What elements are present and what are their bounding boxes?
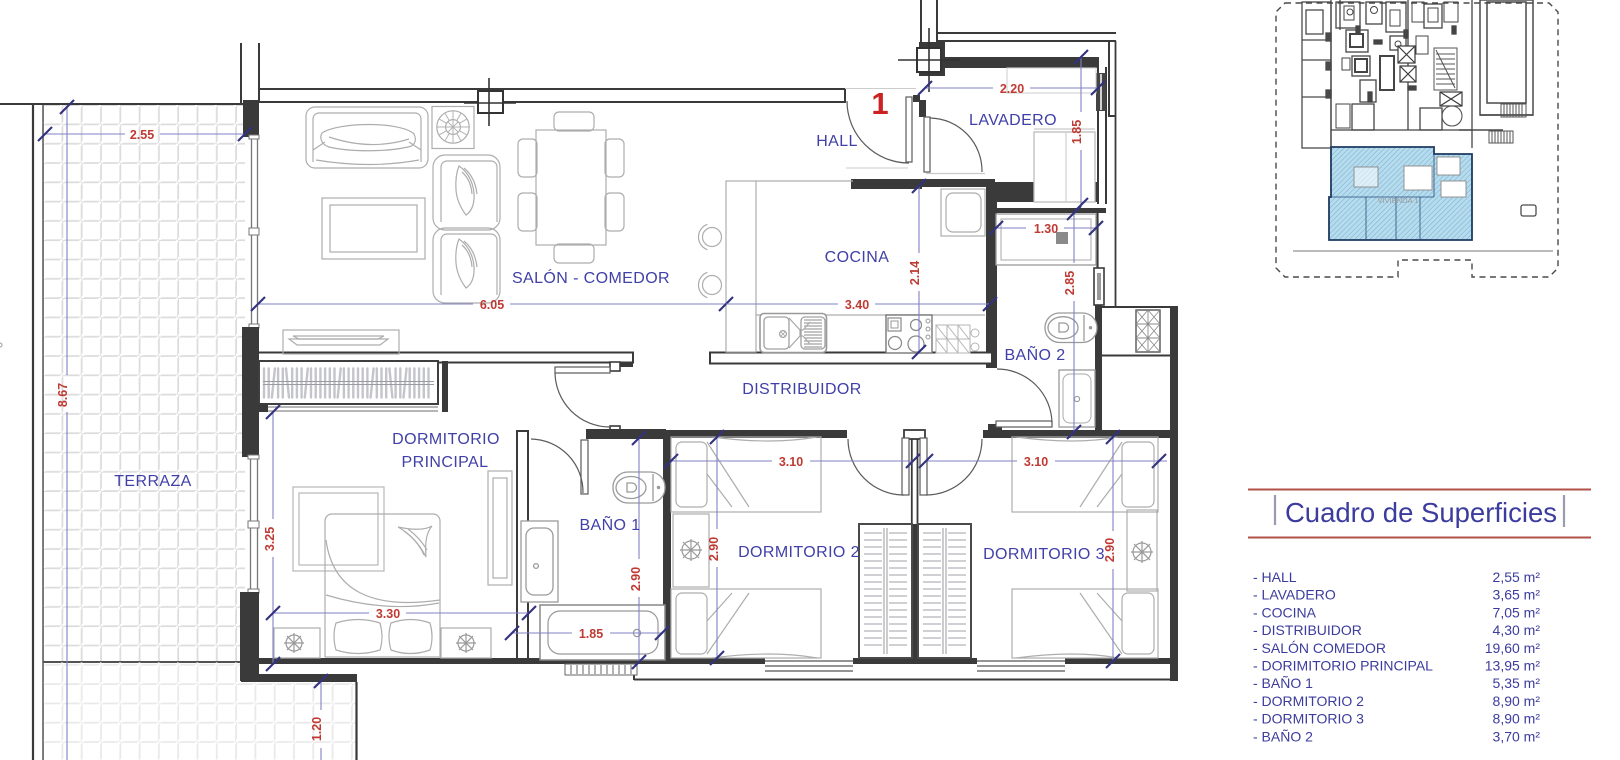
svg-text:3.40: 3.40 bbox=[845, 298, 869, 312]
svg-text:- DORMITORIO 2: - DORMITORIO 2 bbox=[1253, 693, 1364, 709]
svg-text:3.10: 3.10 bbox=[1024, 455, 1048, 469]
svg-text:1.85: 1.85 bbox=[579, 627, 603, 641]
svg-text:2.90: 2.90 bbox=[1103, 538, 1117, 562]
svg-text:19,60 m²: 19,60 m² bbox=[1485, 640, 1541, 656]
svg-text:TERRAZA: TERRAZA bbox=[114, 473, 191, 490]
svg-text:2.55: 2.55 bbox=[130, 128, 154, 142]
svg-text:3.25: 3.25 bbox=[263, 527, 277, 551]
svg-text:8.67: 8.67 bbox=[56, 383, 70, 407]
svg-text:1.30: 1.30 bbox=[1034, 222, 1058, 236]
svg-text:BAÑO 2: BAÑO 2 bbox=[1004, 344, 1065, 364]
svg-text:HALL: HALL bbox=[816, 133, 858, 150]
svg-text:2.20: 2.20 bbox=[1000, 82, 1024, 96]
svg-text:1.85: 1.85 bbox=[1070, 120, 1084, 144]
svg-text:COCINA: COCINA bbox=[825, 249, 890, 266]
svg-text:- BAÑO 2: - BAÑO 2 bbox=[1253, 728, 1313, 744]
svg-text:DISTRIBUIDOR: DISTRIBUIDOR bbox=[742, 381, 861, 398]
svg-text:Cuadro de Superficies: Cuadro de Superficies bbox=[1285, 497, 1557, 528]
svg-text:DORMITORIO 2: DORMITORIO 2 bbox=[738, 544, 860, 561]
svg-text:3.30: 3.30 bbox=[376, 607, 400, 621]
svg-text:2.90: 2.90 bbox=[629, 567, 643, 591]
svg-text:- DORMITORIO 3: - DORMITORIO 3 bbox=[1253, 711, 1364, 727]
svg-text:- HALL: - HALL bbox=[1253, 569, 1297, 585]
svg-text:BAÑO 1: BAÑO 1 bbox=[579, 514, 640, 534]
svg-text:DORMITORIO 3: DORMITORIO 3 bbox=[983, 546, 1105, 563]
svg-text:LAVADERO: LAVADERO bbox=[969, 112, 1057, 129]
svg-text:- DISTRIBUIDOR: - DISTRIBUIDOR bbox=[1253, 622, 1362, 638]
svg-text:DORMITORIO: DORMITORIO bbox=[392, 431, 500, 448]
svg-text:- COCINA: - COCINA bbox=[1253, 604, 1317, 620]
svg-text:3.10: 3.10 bbox=[779, 455, 803, 469]
svg-text:5,35 m²: 5,35 m² bbox=[1493, 675, 1541, 691]
svg-text:8,90 m²: 8,90 m² bbox=[1493, 711, 1541, 727]
svg-text:- BAÑO 1: - BAÑO 1 bbox=[1253, 675, 1313, 691]
svg-text:3,70 m²: 3,70 m² bbox=[1493, 728, 1541, 744]
svg-text:2.85: 2.85 bbox=[1063, 271, 1077, 295]
svg-text:2.14: 2.14 bbox=[908, 261, 922, 285]
svg-text:VIVIENDA 1: VIVIENDA 1 bbox=[1378, 196, 1419, 205]
svg-text:3,65 m²: 3,65 m² bbox=[1493, 587, 1541, 603]
svg-text:6.05: 6.05 bbox=[480, 298, 504, 312]
svg-text:13,95 m²: 13,95 m² bbox=[1485, 658, 1541, 674]
svg-text:- SALÓN COMEDOR: - SALÓN COMEDOR bbox=[1253, 640, 1386, 656]
svg-text:7,05 m²: 7,05 m² bbox=[1493, 604, 1541, 620]
svg-text:1: 1 bbox=[871, 86, 888, 121]
svg-text:4,30 m²: 4,30 m² bbox=[1493, 622, 1541, 638]
svg-text:- LAVADERO: - LAVADERO bbox=[1253, 587, 1336, 603]
svg-text:8,90 m²: 8,90 m² bbox=[1493, 693, 1541, 709]
svg-text:- DORIMITORIO PRINCIPAL: - DORIMITORIO PRINCIPAL bbox=[1253, 658, 1433, 674]
svg-text:2,55 m²: 2,55 m² bbox=[1493, 569, 1541, 585]
svg-text:1.20: 1.20 bbox=[310, 717, 324, 741]
svg-text:2.90: 2.90 bbox=[707, 537, 721, 561]
svg-text:PRINCIPAL: PRINCIPAL bbox=[402, 454, 489, 471]
svg-text:SALÓN - COMEDOR: SALÓN - COMEDOR bbox=[512, 268, 670, 287]
